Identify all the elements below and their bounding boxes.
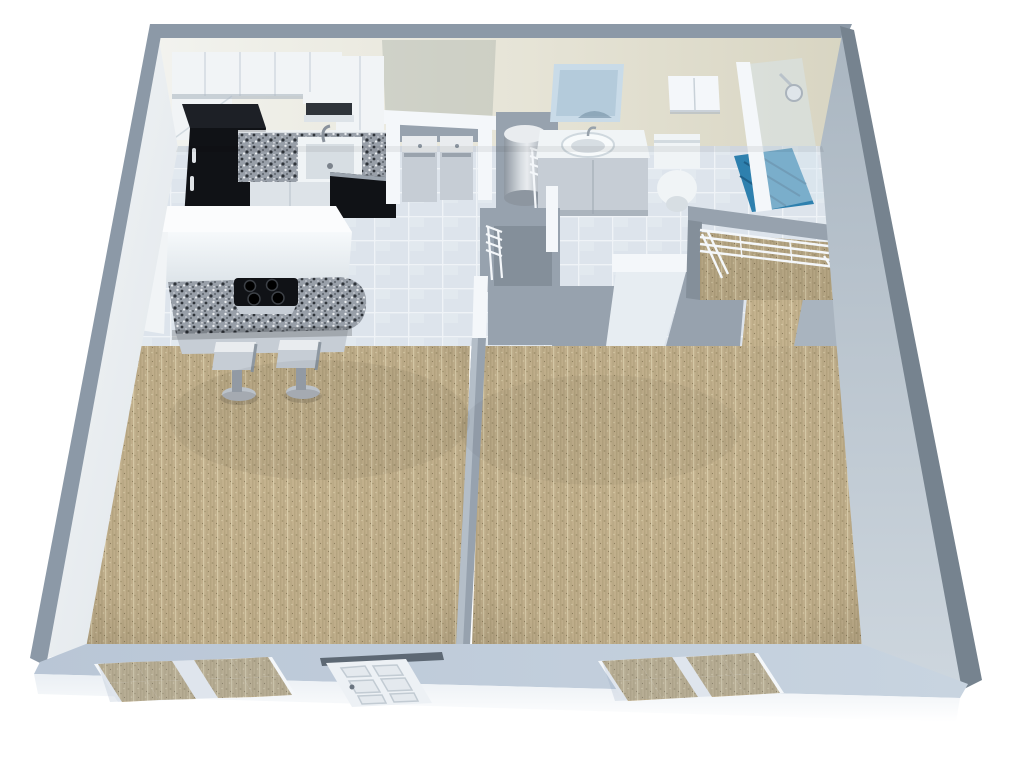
- wall-seg-left: [552, 286, 616, 346]
- refrigerator-top: [182, 104, 266, 128]
- washer: [402, 136, 437, 202]
- floorplan-3d-render: kitchen kitchen upper cabinets microwave…: [0, 0, 1024, 759]
- window-glass-panes: [98, 657, 292, 702]
- entry-closet: entry closet: [472, 186, 560, 346]
- far-wall-top-edge: [150, 24, 852, 38]
- bedroom-window: bedroom double window: [598, 653, 784, 701]
- burner-4: [272, 292, 284, 304]
- bath-door-jamb: [546, 186, 558, 252]
- dryer: [440, 136, 473, 200]
- laundry-frame-post-right: [478, 122, 492, 200]
- window-glass-panes: [602, 653, 780, 701]
- refrigerator-handle-lower: [190, 176, 194, 191]
- showerhead: [786, 85, 802, 101]
- bathroom-door-header: [612, 254, 690, 272]
- medicine-cabinet: medicine cabinet: [668, 76, 720, 114]
- floorplan-render-stage: kitchen kitchen upper cabinets microwave…: [0, 0, 1024, 759]
- burner-3: [248, 293, 260, 305]
- cooktop: [234, 278, 298, 314]
- closet-left-wall: [686, 220, 702, 300]
- microwave-shelf: microwave shelf: [303, 92, 355, 122]
- burner-2: [267, 280, 278, 291]
- hall-door-jamb: [472, 276, 488, 346]
- vanity-mirror: [550, 64, 624, 122]
- toilet-base: [666, 196, 688, 212]
- door-knob: [350, 685, 355, 690]
- kitchen: kitchen upper cabinets microwave shelf r…: [172, 52, 396, 218]
- sink-drain: [327, 163, 333, 169]
- cooktop-steel-edge: [236, 306, 296, 314]
- living-room-window: living room double window: [94, 657, 296, 702]
- far-wall-floor-shadow: [176, 146, 824, 152]
- living-room-center-shadow: [170, 360, 470, 480]
- bedroom-center-shadow: [460, 375, 740, 485]
- burner-1: [245, 281, 256, 292]
- laundry-frame-post-left: [386, 122, 400, 204]
- window-glass-tint: [98, 657, 292, 702]
- bathroom: bathroom medicine cabinet bathroom vanit…: [536, 58, 824, 216]
- window-glass-tint: [602, 653, 780, 701]
